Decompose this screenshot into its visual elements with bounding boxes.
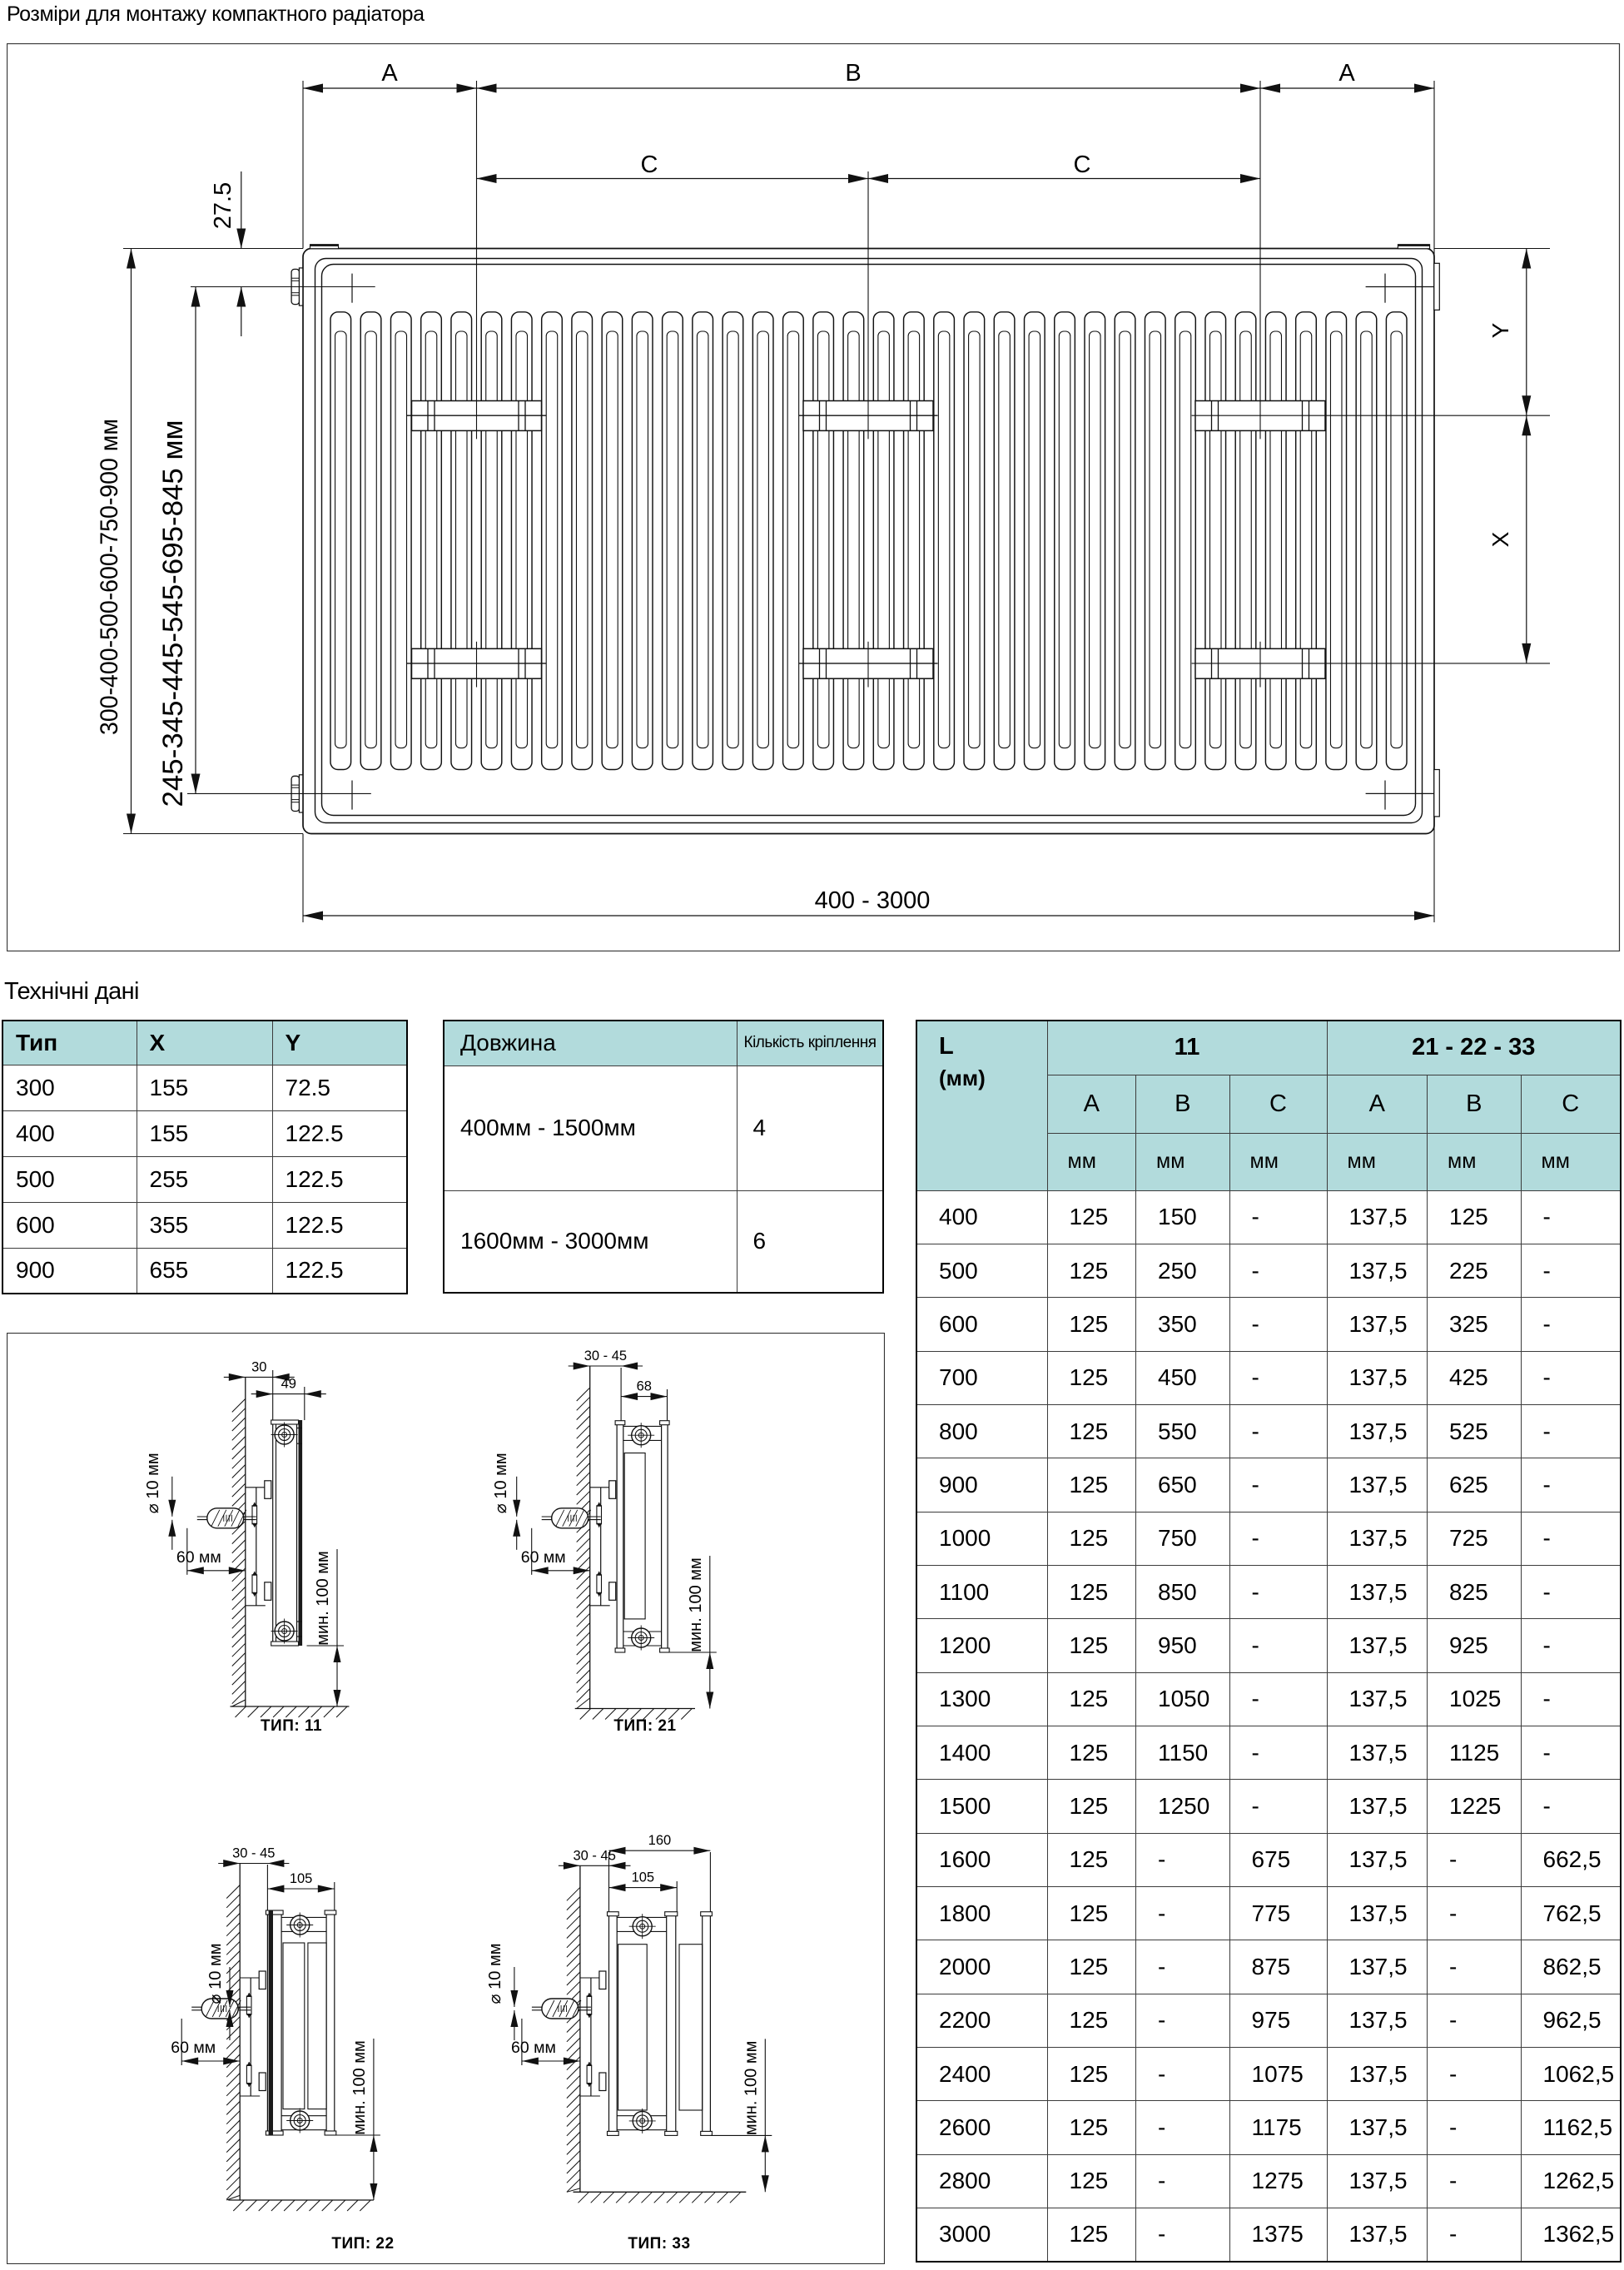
svg-text:A: A <box>1338 60 1355 87</box>
svg-text:60 мм: 60 мм <box>176 1548 221 1567</box>
svg-text:мин. 100 мм: мин. 100 мм <box>350 2040 369 2135</box>
svg-text:мин. 100 мм: мин. 100 мм <box>742 2041 760 2136</box>
svg-text:Y: Y <box>1487 322 1513 338</box>
svg-text:160: 160 <box>648 1833 672 1848</box>
svg-text:⌀ 10 мм: ⌀ 10 мм <box>206 1944 225 2004</box>
svg-text:ТИП: 21: ТИП: 21 <box>613 1717 676 1735</box>
svg-text:105: 105 <box>632 1870 655 1885</box>
svg-text:400 - 3000: 400 - 3000 <box>815 887 931 914</box>
svg-text:C: C <box>641 151 658 178</box>
svg-text:⌀ 10 мм: ⌀ 10 мм <box>492 1453 510 1513</box>
svg-text:30: 30 <box>251 1359 266 1374</box>
svg-text:B: B <box>845 60 861 87</box>
svg-text:⌀ 10 мм: ⌀ 10 мм <box>486 1944 504 2004</box>
svg-text:X: X <box>1487 531 1513 547</box>
svg-text:30 - 45: 30 - 45 <box>232 1846 275 1861</box>
svg-text:ТИП: 33: ТИП: 33 <box>628 2235 690 2253</box>
svg-text:мин. 100 мм: мин. 100 мм <box>314 1551 332 1646</box>
svg-text:⌀ 10 мм: ⌀ 10 мм <box>144 1453 162 1513</box>
svg-text:30 - 45: 30 - 45 <box>584 1349 627 1363</box>
svg-text:ТИП: 11: ТИП: 11 <box>261 1717 322 1735</box>
svg-text:105: 105 <box>290 1871 313 1886</box>
svg-text:60 мм: 60 мм <box>521 1548 566 1567</box>
svg-text:300-400-500-600-750-900 мм: 300-400-500-600-750-900 мм <box>96 419 123 735</box>
svg-text:60 мм: 60 мм <box>511 2039 556 2057</box>
svg-text:60 мм: 60 мм <box>171 2039 216 2057</box>
svg-text:245-345-445-545-695-845 мм: 245-345-445-545-695-845 мм <box>157 420 189 807</box>
svg-text:68: 68 <box>637 1379 652 1394</box>
svg-text:мин. 100 мм: мин. 100 мм <box>687 1557 705 1652</box>
svg-text:ТИП: 22: ТИП: 22 <box>331 2235 394 2253</box>
svg-text:30 - 45: 30 - 45 <box>574 1848 616 1863</box>
svg-text:C: C <box>1074 151 1091 178</box>
svg-text:A: A <box>381 60 398 87</box>
svg-text:27.5: 27.5 <box>210 182 236 229</box>
svg-text:49: 49 <box>281 1377 296 1392</box>
